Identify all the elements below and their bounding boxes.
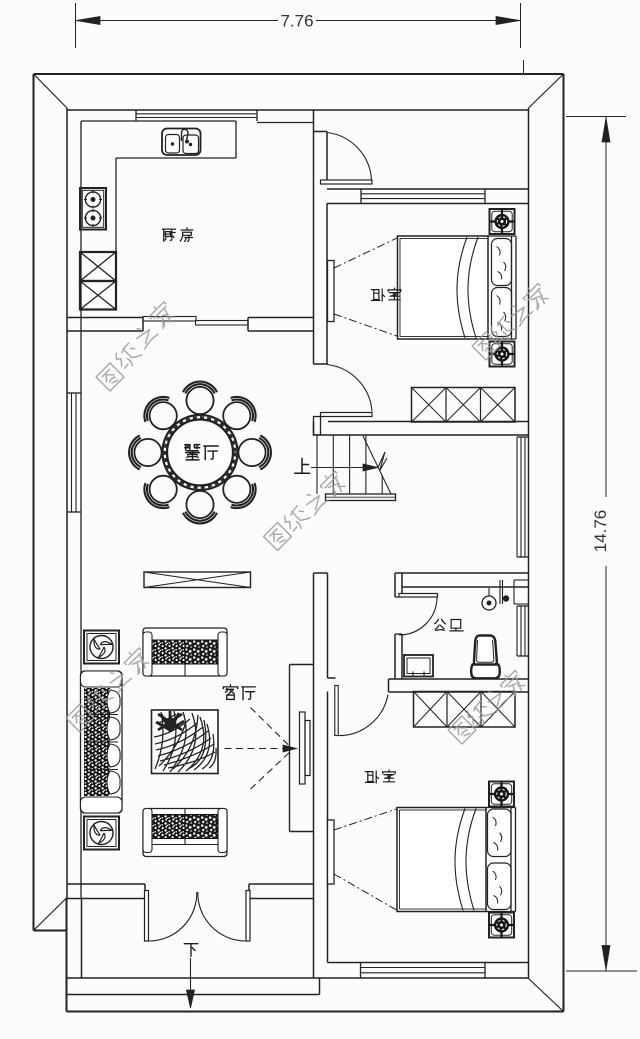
- svg-text:14.76: 14.76: [591, 510, 610, 553]
- svg-text:7.76: 7.76: [280, 12, 313, 31]
